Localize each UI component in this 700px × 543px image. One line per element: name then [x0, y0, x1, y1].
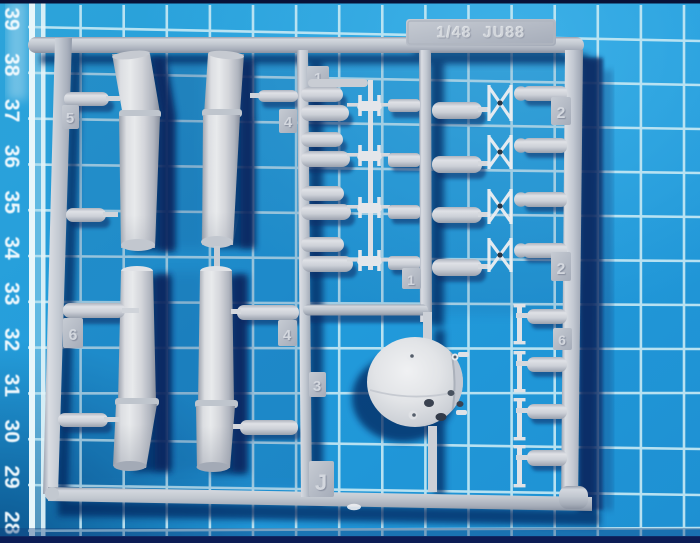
svg-text:36: 36: [0, 145, 23, 168]
svg-text:6: 6: [558, 332, 566, 348]
svg-text:35: 35: [0, 191, 23, 215]
svg-text:37: 37: [0, 99, 23, 122]
svg-text:39: 39: [0, 7, 23, 30]
svg-text:5: 5: [66, 110, 74, 127]
svg-text:32: 32: [0, 328, 23, 351]
svg-text:2: 2: [557, 261, 566, 278]
svg-text:30: 30: [0, 420, 23, 443]
svg-text:3: 3: [313, 378, 321, 395]
svg-text:6: 6: [69, 327, 78, 344]
svg-text:4: 4: [284, 114, 293, 131]
svg-text:33: 33: [0, 282, 23, 305]
svg-text:38: 38: [0, 53, 23, 77]
svg-text:31: 31: [0, 374, 23, 398]
svg-text:4: 4: [283, 327, 292, 344]
svg-text:J: J: [315, 470, 327, 495]
svg-text:2: 2: [557, 105, 566, 122]
svg-text:1: 1: [407, 272, 415, 288]
svg-text:1/48 JU88: 1/48 JU88: [437, 25, 526, 42]
svg-text:29: 29: [0, 465, 23, 488]
svg-text:34: 34: [0, 236, 23, 260]
